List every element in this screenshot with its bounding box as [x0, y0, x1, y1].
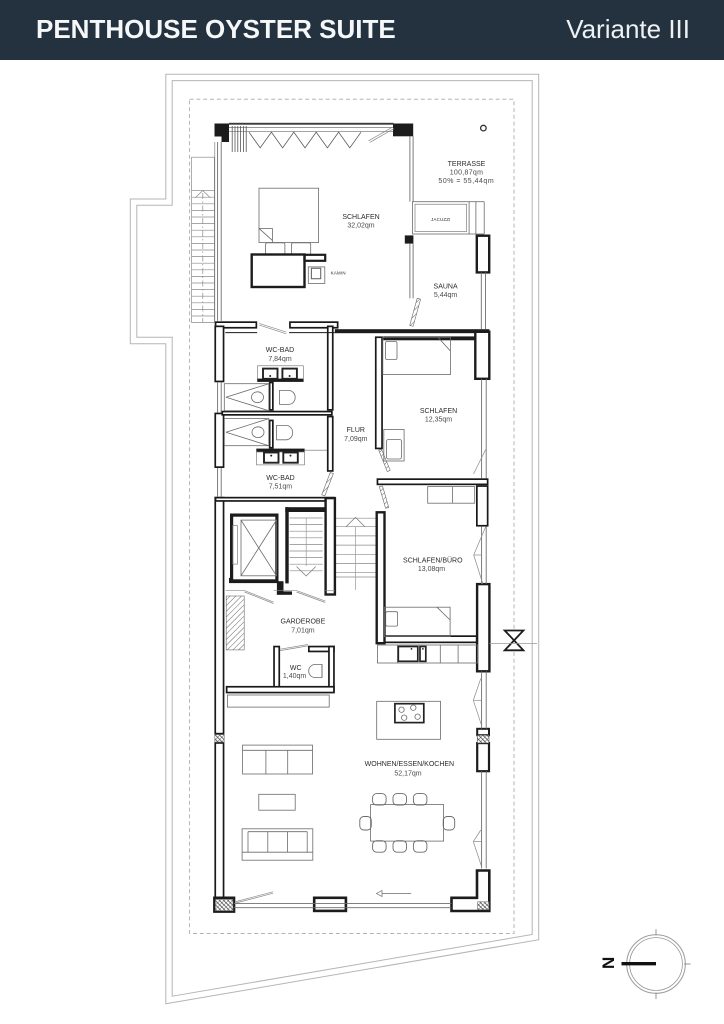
svg-text:1,40qm: 1,40qm — [283, 673, 307, 680]
svg-text:SCHLAFEN: SCHLAFEN — [420, 408, 457, 415]
svg-text:SCHLAFEN: SCHLAFEN — [342, 214, 379, 221]
svg-text:JACUZZI: JACUZZI — [431, 217, 450, 222]
svg-text:WOHNEN/ESSEN/KOCHEN: WOHNEN/ESSEN/KOCHEN — [365, 761, 454, 768]
svg-text:WC-BAD: WC-BAD — [266, 347, 294, 354]
svg-text:7,84qm: 7,84qm — [268, 356, 292, 363]
svg-text:SCHLAFEN/BÜRO: SCHLAFEN/BÜRO — [403, 556, 463, 564]
svg-text:WC: WC — [290, 665, 302, 672]
svg-text:N: N — [598, 957, 617, 969]
svg-text:5,44qm: 5,44qm — [434, 292, 458, 299]
svg-text:100,87qm: 100,87qm — [450, 170, 484, 177]
svg-text:KAMIN: KAMIN — [331, 270, 346, 275]
svg-text:SAUNA: SAUNA — [434, 283, 458, 290]
svg-text:32,02qm: 32,02qm — [347, 223, 374, 230]
svg-text:WC-BAD: WC-BAD — [266, 475, 294, 482]
svg-text:12,35qm: 12,35qm — [425, 416, 452, 423]
svg-text:50% = 55,44qm: 50% = 55,44qm — [438, 178, 494, 185]
svg-text:7,09qm: 7,09qm — [344, 436, 368, 443]
svg-text:7,01qm: 7,01qm — [291, 627, 315, 634]
svg-text:13,08qm: 13,08qm — [418, 566, 445, 573]
svg-text:52,17qm: 52,17qm — [394, 771, 421, 778]
svg-text:GARDEROBE: GARDEROBE — [281, 618, 326, 625]
svg-text:FLUR: FLUR — [347, 427, 365, 434]
svg-text:TERRASSE: TERRASSE — [448, 161, 486, 168]
svg-text:7,51qm: 7,51qm — [269, 484, 293, 491]
